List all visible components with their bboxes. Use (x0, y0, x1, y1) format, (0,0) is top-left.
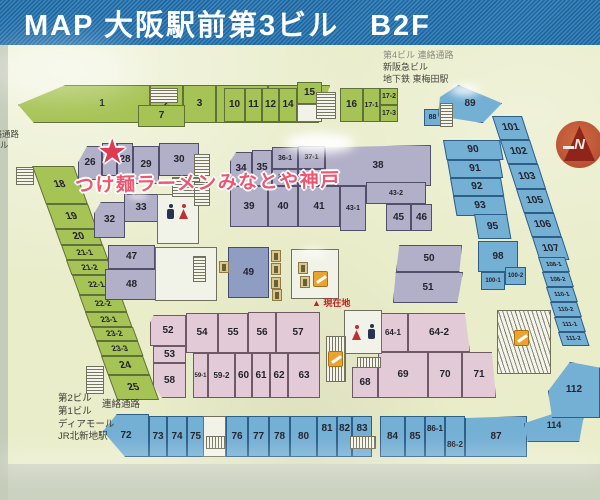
elevator-icon (298, 262, 308, 274)
unit-label: 23-3 (110, 345, 129, 353)
unit-label: 43-1 (346, 205, 360, 212)
unit-87: 87 (465, 416, 527, 457)
unit-label: 76 (231, 432, 242, 442)
unit-23-1: 23-1 (85, 312, 132, 327)
unit-80: 80 (290, 416, 317, 457)
unit-label: 20 (72, 232, 87, 242)
unit-46: 46 (411, 204, 432, 231)
unit-label: 89 (464, 99, 475, 109)
unit-label: 105 (525, 196, 545, 206)
unit-43-1: 43-1 (340, 186, 366, 231)
unit-43-2: 43-2 (366, 182, 426, 204)
stairs-icon (440, 103, 453, 127)
unit-label: 58 (164, 376, 175, 386)
north-letter: N (556, 136, 600, 153)
unit-label: 111-1 (562, 322, 579, 328)
station-links-note: 第4ビル 連絡通路 新阪急ビル 地下鉄 東梅田駅 (383, 49, 454, 85)
unit-label: 32 (104, 215, 115, 225)
unit-label: 23-2 (105, 330, 124, 338)
unit-label: 84 (387, 432, 398, 442)
unit-62: 62 (270, 353, 288, 398)
unit-95: 95 (474, 214, 511, 239)
elevator-icon (271, 263, 281, 275)
unit-71: 71 (462, 352, 496, 398)
title-bar: MAP 大阪駅前第3ビル B2F (0, 0, 600, 45)
note-line: 地下鉄 東梅田駅 (383, 73, 454, 85)
unit-label: 11 (248, 100, 259, 110)
unit-label: 95 (486, 222, 499, 232)
unit-label: 10 (229, 100, 240, 110)
unit-label: 7 (159, 111, 165, 121)
corridor-note: 連絡通路 (102, 399, 140, 412)
unit-17-1: 17-1 (363, 88, 380, 122)
stairs-icon (150, 88, 178, 103)
unit-label: 47 (126, 252, 137, 262)
unit-label: 18 (53, 180, 68, 190)
unit-label: 50 (423, 254, 434, 264)
unit-label: 17-3 (382, 110, 396, 117)
unit-48: 48 (105, 269, 158, 300)
unit-label: 22-2 (94, 300, 113, 308)
unit-57: 57 (276, 312, 320, 353)
unit-19: 19 (46, 204, 97, 229)
unit-24: 24 (101, 356, 150, 375)
unit-54: 54 (186, 313, 218, 353)
note-line: 連絡通路 (0, 129, 19, 140)
unit-23-3: 23-3 (96, 341, 143, 356)
unit-11: 11 (245, 88, 262, 122)
unit-label: 85 (409, 432, 420, 442)
unit-label: 92 (471, 182, 484, 192)
womens-toilet-icon (352, 325, 361, 340)
unit-label: 78 (274, 432, 285, 442)
unit-label: 26 (84, 158, 95, 168)
page-title: MAP 大阪駅前第3ビル B2F (24, 2, 431, 44)
unit-81: 81 (317, 416, 337, 457)
unit-label: 100-1 (485, 278, 500, 284)
unit-label: 60 (238, 371, 249, 381)
mens-toilet-icon (166, 204, 175, 219)
unit-78: 78 (269, 416, 290, 457)
unit-label: 74 (171, 432, 182, 442)
unit-label: 61 (255, 371, 266, 381)
unit-label: 39 (243, 202, 254, 212)
stairs-icon (86, 366, 104, 394)
unit-52: 52 (150, 315, 186, 346)
escalator-icon (313, 271, 328, 287)
unit-label: 51 (422, 283, 433, 293)
shop-star-icon: ★ (97, 135, 127, 169)
unit-21-1: 21-1 (61, 245, 108, 260)
unit-label: 86-1 (427, 425, 443, 433)
north-arrow-icon: N (556, 121, 600, 168)
unit-label: 77 (253, 432, 264, 442)
toilet-room (157, 194, 199, 244)
unit-63: 63 (288, 353, 320, 398)
unit-label: 83 (356, 424, 367, 434)
stairs-icon (357, 357, 381, 368)
map-photo: 12356710111214151617-117-217-318192021-1… (0, 0, 600, 500)
unit-53: 53 (153, 346, 186, 363)
unit-59-2: 59-2 (208, 353, 235, 398)
unit-51: 51 (393, 272, 463, 303)
unit-100-1: 100-1 (481, 272, 505, 290)
unit-111-1: 111-1 (554, 317, 586, 332)
unit-label: 86-2 (447, 441, 463, 449)
current-location-marker: ▲ 現在地 (312, 296, 350, 309)
shop-callout: つけ麺ラーメンみなとや神戸 (75, 165, 341, 198)
unit-45: 45 (386, 204, 411, 231)
unit-16: 16 (340, 88, 363, 122)
unit-label: 68 (359, 378, 370, 388)
unit-label: 23-1 (99, 316, 118, 324)
unit-86-2: 86-2 (445, 416, 465, 457)
unit-label: 33 (135, 203, 146, 213)
unit-label: 54 (196, 328, 207, 338)
left-edge-note: 連絡通路 ル (0, 129, 19, 152)
unit-label: 101 (501, 123, 521, 133)
unit-3: 3 (183, 85, 216, 123)
unit-label: 100-2 (508, 273, 523, 279)
toilet-room (344, 310, 382, 354)
unit-label: 38 (372, 161, 383, 171)
unit-85: 85 (405, 416, 425, 457)
womens-toilet-icon (179, 204, 188, 219)
unit-label: 17-2 (382, 93, 396, 100)
unit-label: 80 (298, 432, 309, 442)
unit-111-2: 111-2 (558, 332, 590, 346)
unit-label: 22-1 (87, 281, 106, 289)
unit-label: 45 (393, 213, 404, 223)
unit-69: 69 (378, 352, 428, 398)
unit-label: 81 (321, 424, 332, 434)
elevator-icon (300, 276, 310, 288)
unit-label: 16 (346, 100, 357, 110)
unit-label: 88 (429, 114, 437, 121)
unit-label: 103 (517, 172, 537, 182)
unit-label: 59-1 (194, 373, 206, 379)
unit-100-2: 100-2 (505, 267, 526, 285)
unit-76: 76 (226, 416, 248, 457)
unit-label: 107 (541, 244, 561, 254)
unit-75: 75 (187, 416, 204, 457)
unit-64-1: 64-1 (378, 313, 408, 352)
unit-label: 98 (492, 252, 503, 262)
note-line: 第4ビル 連絡通路 (383, 49, 454, 61)
unit-label: 93 (474, 201, 487, 211)
stairs-icon (206, 436, 226, 449)
elevator-icon (219, 261, 229, 273)
unit-91: 91 (447, 160, 503, 178)
unit-label: 70 (439, 370, 450, 380)
unit-23-2: 23-2 (91, 327, 138, 341)
unit-label: 64-2 (429, 328, 449, 338)
board-left-edge (0, 45, 8, 500)
unit-label: 108-2 (549, 277, 566, 283)
unit-14: 14 (279, 88, 297, 122)
unit-label: 90 (467, 145, 480, 155)
elevator-icon (271, 250, 281, 262)
stair-room (155, 247, 217, 301)
unit-label: 111-2 (565, 336, 582, 342)
escalator-icon (514, 330, 529, 346)
unit-17-3: 17-3 (380, 105, 398, 122)
stairs-icon (316, 92, 336, 119)
unit-73: 73 (149, 416, 167, 457)
note-line: 新阪急ビル (383, 61, 454, 73)
unit-55: 55 (218, 313, 248, 353)
unit-86-1: 86-1 (425, 416, 445, 457)
unit-108-1: 108-1 (538, 257, 570, 272)
unit-88: 88 (424, 109, 441, 126)
unit-label: 15 (304, 88, 315, 98)
unit-label: 49 (243, 268, 254, 278)
unit-label: 52 (162, 326, 173, 336)
unit-74: 74 (167, 416, 187, 457)
unit-label: 30 (173, 155, 184, 165)
unit-84: 84 (380, 416, 405, 457)
unit-label: 110-2 (557, 307, 574, 313)
unit-label: 17-1 (364, 102, 378, 109)
unit-label: 114 (547, 421, 562, 430)
note-line: JR北新地駅 (58, 431, 114, 444)
stairs-icon (16, 167, 34, 185)
unit-label: 46 (416, 213, 427, 223)
unit-7: 7 (138, 105, 185, 127)
unit-10: 10 (224, 88, 245, 122)
unit-label: 72 (120, 431, 131, 441)
unit-108-2: 108-2 (542, 272, 574, 287)
unit-label: 56 (256, 328, 267, 338)
escalator-icon (328, 351, 343, 367)
unit-label: 102 (509, 147, 529, 157)
unit-label: 63 (298, 371, 309, 381)
unit-label: 48 (126, 280, 137, 290)
unit-label: 75 (190, 432, 201, 442)
unit-label: 62 (273, 371, 284, 381)
unit-59-1: 59-1 (193, 353, 208, 398)
mens-toilet-icon (367, 324, 376, 339)
unit-label: 1 (99, 99, 105, 109)
unit-label: 82 (339, 424, 350, 434)
unit-label: 64-1 (385, 329, 401, 337)
unit-label: 12 (265, 100, 276, 110)
unit-64-2: 64-2 (408, 313, 470, 352)
unit-60: 60 (235, 353, 252, 398)
unit-label: 108-1 (545, 262, 562, 268)
unit-label: 73 (152, 432, 163, 442)
unit-label: 25 (126, 383, 141, 393)
unit-label: 55 (227, 328, 238, 338)
unit-label: 106 (533, 220, 553, 230)
unit-label: 112 (566, 385, 582, 395)
unit-label: 36-1 (278, 155, 292, 162)
unit-label: 69 (397, 370, 408, 380)
unit-label: 91 (469, 164, 482, 174)
note-line: ディアモール (58, 419, 114, 432)
unit-label: 53 (164, 350, 175, 360)
elevator-icon (271, 277, 281, 289)
unit-label: 40 (277, 202, 288, 212)
unit-68: 68 (352, 367, 378, 398)
unit-17-2: 17-2 (380, 88, 398, 105)
unit-47: 47 (108, 245, 155, 269)
unit-110-1: 110-1 (546, 287, 578, 302)
unit-25: 25 (108, 375, 159, 400)
unit-90: 90 (443, 140, 504, 160)
unit-label: 19 (64, 212, 79, 222)
unit-50: 50 (396, 245, 462, 272)
unit-label: 59-2 (213, 372, 229, 380)
unit-label: 71 (473, 370, 484, 380)
unit-12: 12 (262, 88, 279, 122)
unit-label: 21-2 (80, 264, 99, 272)
unit-110-2: 110-2 (550, 302, 582, 317)
unit-56: 56 (248, 312, 276, 353)
unit-61: 61 (252, 353, 270, 398)
unit-label: 87 (490, 432, 501, 442)
unit-77: 77 (248, 416, 269, 457)
elevator-icon (272, 289, 282, 301)
unit-label: 43-2 (389, 190, 403, 197)
unit-33: 33 (124, 194, 158, 222)
unit-label: 14 (282, 100, 293, 110)
unit-92: 92 (450, 178, 504, 196)
unit-label: 24 (118, 361, 133, 371)
stairs-icon (350, 436, 376, 449)
unit-label: 41 (313, 202, 324, 212)
unit-label: 110-1 (553, 292, 570, 298)
unit-93: 93 (453, 196, 508, 216)
unit-49: 49 (228, 247, 269, 298)
unit-32: 32 (94, 202, 125, 238)
unit-label: 3 (197, 99, 203, 109)
unit-70: 70 (428, 352, 462, 398)
unit-label: 37-1 (304, 154, 318, 161)
unit-label: 21-1 (75, 249, 94, 257)
stairs-icon (193, 256, 206, 282)
note-line: ル (0, 140, 19, 151)
unit-label: 57 (292, 328, 303, 338)
